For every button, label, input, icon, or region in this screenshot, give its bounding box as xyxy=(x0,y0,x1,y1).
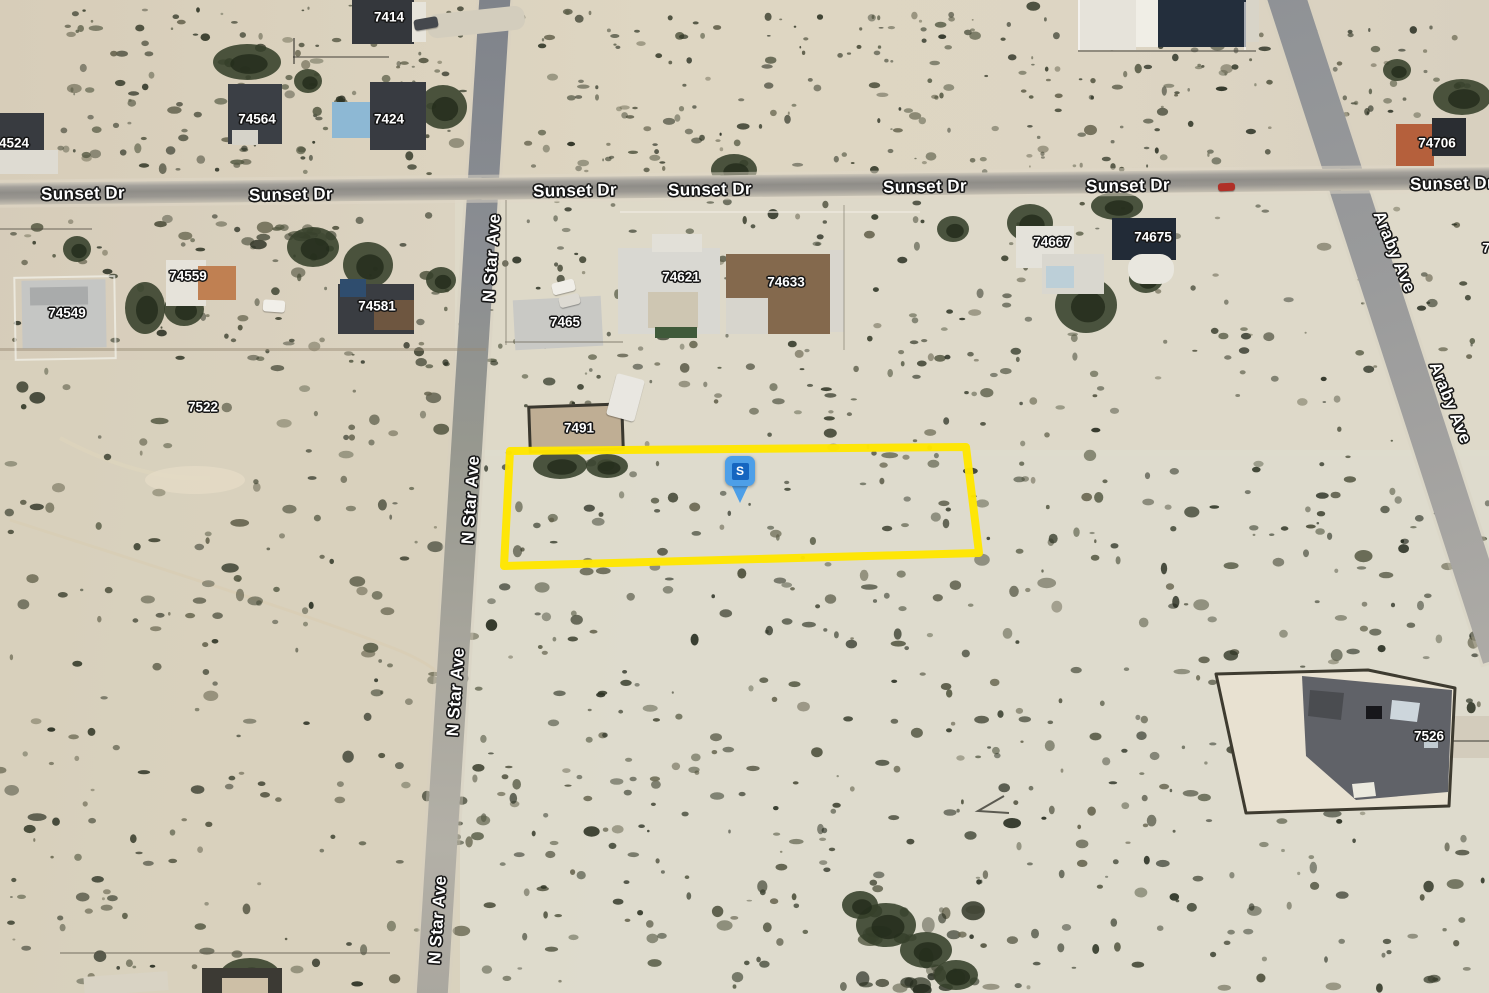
ground-corner-mark xyxy=(978,796,1009,813)
compound-dark-opening xyxy=(1366,706,1382,719)
map-pin-tail xyxy=(731,484,749,503)
compound-roof-glint xyxy=(1424,738,1438,748)
compound-white-shed xyxy=(1352,782,1376,798)
map-pin-head: S xyxy=(725,456,755,486)
map-pin-letter: S xyxy=(732,463,749,480)
compound-roof-glint xyxy=(1390,700,1420,722)
satellite-map[interactable]: Sunset DrSunset DrSunset DrSunset DrSuns… xyxy=(0,0,1489,993)
compound-roof-shadow xyxy=(1308,690,1344,720)
